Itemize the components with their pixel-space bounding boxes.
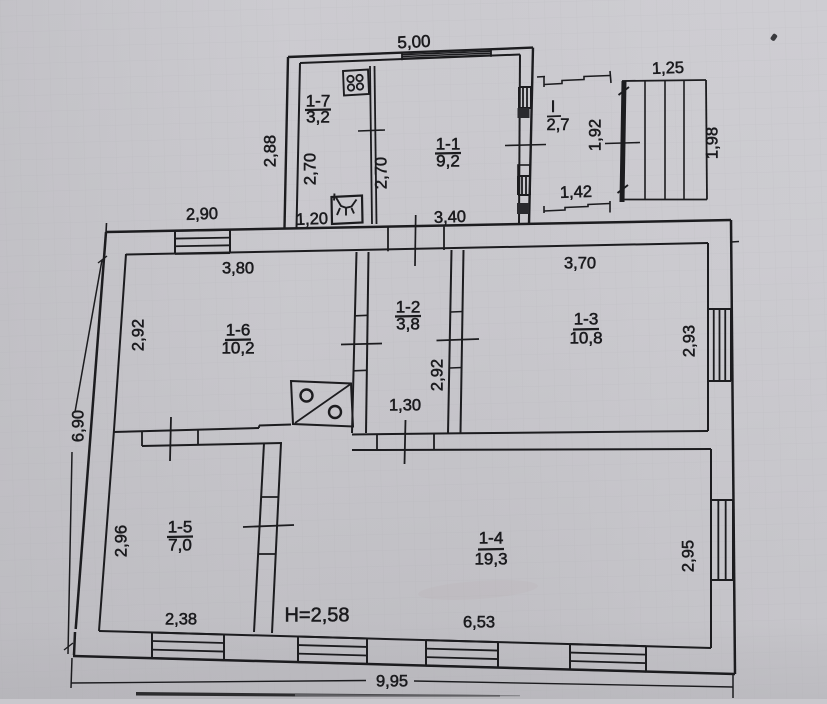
- svg-text:2,96: 2,96: [112, 525, 130, 557]
- svg-text:10,2: 10,2: [221, 338, 254, 357]
- svg-text:1,42: 1,42: [560, 183, 593, 202]
- svg-text:2,92: 2,92: [129, 319, 147, 351]
- svg-text:7,0: 7,0: [168, 535, 192, 554]
- svg-text:1-6: 1-6: [226, 320, 251, 339]
- svg-text:1,25: 1,25: [652, 59, 685, 78]
- svg-text:3,8: 3,8: [396, 314, 420, 333]
- svg-text:2,70: 2,70: [301, 153, 319, 185]
- svg-text:1,30: 1,30: [389, 396, 421, 414]
- svg-text:2,88: 2,88: [261, 135, 279, 167]
- svg-text:3,80: 3,80: [222, 259, 254, 277]
- svg-text:2,92: 2,92: [428, 359, 446, 391]
- svg-text:1-3: 1-3: [574, 309, 599, 328]
- svg-text:10,8: 10,8: [569, 328, 602, 347]
- svg-text:H=2,58: H=2,58: [284, 604, 349, 626]
- svg-text:5,00: 5,00: [397, 32, 431, 52]
- svg-text:1,92: 1,92: [586, 119, 604, 151]
- svg-text:2,93: 2,93: [680, 325, 698, 357]
- svg-text:2,90: 2,90: [186, 205, 219, 224]
- svg-text:2,70: 2,70: [372, 157, 390, 189]
- svg-text:19,3: 19,3: [474, 549, 507, 568]
- svg-text:2,7: 2,7: [547, 116, 570, 134]
- svg-text:6,53: 6,53: [463, 613, 495, 631]
- svg-text:2,38: 2,38: [165, 610, 197, 628]
- svg-text:6,90: 6,90: [69, 410, 87, 442]
- svg-text:1,20: 1,20: [296, 210, 329, 229]
- svg-text:3,2: 3,2: [306, 107, 330, 126]
- svg-text:3,70: 3,70: [564, 254, 596, 272]
- svg-text:1,98: 1,98: [703, 127, 721, 159]
- svg-text:9,2: 9,2: [436, 151, 460, 170]
- svg-text:2,95: 2,95: [679, 540, 697, 572]
- svg-text:1-4: 1-4: [479, 528, 504, 547]
- svg-text:3,40: 3,40: [434, 208, 467, 227]
- svg-text:1-5: 1-5: [168, 517, 193, 536]
- svg-text:I: I: [551, 98, 556, 116]
- svg-text:9,95: 9,95: [376, 672, 408, 690]
